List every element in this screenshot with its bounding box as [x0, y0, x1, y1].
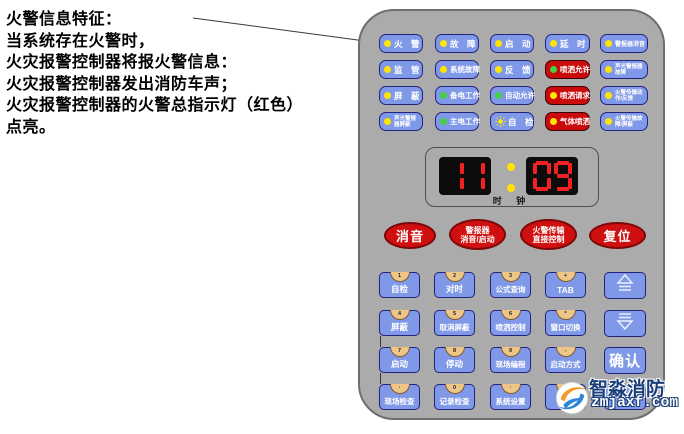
clock-label: 时 钟 [426, 194, 598, 207]
connector-line [380, 373, 381, 384]
keypad-button-shield-key[interactable]: 4屏蔽 [379, 310, 420, 336]
yellow-led [605, 118, 612, 125]
indicator-start: 启 动 [490, 34, 534, 53]
yellow-led [605, 40, 612, 47]
indicator-spray-request: 喷洒请求 [545, 86, 590, 105]
green-led [550, 66, 557, 73]
watermark-logo: 智淼消防 zmjaxf.com [552, 374, 684, 418]
yellow-led [440, 66, 447, 73]
keypad-button-label: 系统设置 [491, 396, 530, 407]
keypad-button-window-switch[interactable]: *窗口切换 [545, 310, 586, 336]
button-label: 警报器 [466, 226, 490, 235]
indicator-backup-power: 备电工作 [435, 86, 479, 105]
keypad-button-label: 启动 [380, 358, 419, 370]
key-number-notch: 4 [390, 310, 410, 320]
indicator-gas-spray: 气体喷洒 [545, 112, 590, 131]
indicator-label-line: 故障 [615, 70, 643, 76]
indicator-sounder-mute: 警报器消音 [600, 34, 648, 53]
keypad-button-formula-query[interactable]: 3公式查询 [490, 272, 531, 298]
annotation-line: 当系统存在火警时， [6, 30, 358, 52]
indicator-label: 屏 蔽 [394, 90, 420, 102]
key-number-notch: 5 [445, 310, 465, 320]
clock-colon-dot [507, 163, 515, 171]
indicator-label-line: 声光警报器 [615, 64, 643, 70]
annotation-text: 火警信息特征：当系统存在火警时，火灾报警控制器将报火警信息：火灾报警控制器发出消… [6, 8, 358, 137]
indicator-label: 声光警报器屏蔽 [394, 116, 416, 128]
keypad-button-label: 自检 [380, 283, 419, 295]
down-arrow-icon [614, 311, 636, 336]
indicator-label: 系统故障 [450, 64, 480, 75]
indicator-label: 延 时 [560, 38, 586, 50]
keypad-button-system-setup[interactable]: ·系统设置 [490, 384, 531, 410]
indicator-spray-allowed: 喷洒允许 [545, 60, 590, 79]
yellow-led [384, 66, 391, 73]
indicator-label: 火警传输故障/屏蔽 [615, 116, 643, 128]
indicator-label-line: 障/屏蔽 [615, 122, 643, 128]
indicator-label: 自 检 [508, 116, 534, 128]
key-number-notch: + [556, 272, 576, 282]
green-led [440, 92, 447, 99]
indicator-sounder-fault: 声光警报器故障 [600, 60, 648, 79]
clock-minutes-lcd [526, 157, 578, 195]
indicator-label-line: 火警传输故 [615, 116, 643, 122]
reset-button[interactable]: 复位 [589, 222, 646, 249]
indicator-label-line: 声光警报 [394, 116, 416, 122]
yellow-led [384, 40, 391, 47]
indicator-label: 喷洒请求 [560, 90, 590, 101]
seven-segment-digit [467, 161, 485, 191]
keypad-button-label: 现场检查 [380, 396, 419, 407]
keypad-button-time-set[interactable]: 2对时 [434, 272, 475, 298]
keypad-button-self-test[interactable]: 1自检 [379, 272, 420, 298]
annotation-line: 火灾报警控制器的火警总指示灯（红色） [6, 94, 358, 116]
indicator-label: 自动允许 [505, 90, 535, 101]
button-label: 消音 [396, 226, 424, 245]
control-panel: 火 警故 障启 动延 时警报器消音监 管系统故障反 馈喷洒允许声光警报器故障屏 … [358, 9, 665, 420]
key-number-notch: 6 [501, 310, 521, 320]
yellow-led [550, 118, 557, 125]
indicator-system-fault: 系统故障 [435, 60, 479, 79]
green-led [495, 92, 502, 99]
keypad-button-stop-key[interactable]: 8停动 [434, 347, 475, 373]
yellow-led [550, 92, 557, 99]
indicator-fault: 故 障 [435, 34, 479, 53]
keypad-button-label: 记录检查 [435, 396, 474, 407]
key-number-notch: 3 [501, 272, 521, 282]
indicator-fire-transmission-fault: 火警传输故障/屏蔽 [600, 112, 648, 131]
indicator-shield: 屏 蔽 [379, 86, 423, 105]
indicator-label: 火 警 [394, 38, 420, 50]
seven-segment-digit [446, 161, 464, 191]
indicator-label: 主电工作 [450, 116, 480, 127]
keypad-button-start-mode[interactable]: -启动方式 [545, 347, 586, 373]
indicator-delay: 延 时 [545, 34, 590, 53]
keypad-button-field-check[interactable]: ·现场检查 [379, 384, 420, 410]
indicator-label-line: 火警传输动 [615, 90, 643, 96]
key-number-notch: 2 [445, 272, 465, 282]
yellow-led [384, 118, 391, 125]
key-number-notch: · [501, 384, 521, 394]
indicator-label: 反 馈 [505, 64, 531, 76]
key-number-notch: 9 [501, 347, 521, 357]
indicator-label: 启 动 [505, 38, 531, 50]
indicator-label-line: 作/反馈 [615, 96, 643, 102]
clock-display: 时 钟 [425, 147, 599, 207]
keypad-button-label: 启动方式 [546, 359, 585, 370]
indicator-label: 火警传输动作/反馈 [615, 90, 643, 102]
self-test-flashing-icon [495, 116, 506, 127]
fire-transmission-direct-control-button[interactable]: 火警传输直接控制 [520, 219, 577, 250]
keypad-button-label: 屏蔽 [380, 321, 419, 333]
key-number-notch: 0 [445, 384, 465, 394]
key-number-notch: 1 [390, 272, 410, 282]
sounder-mute-start-button[interactable]: 警报器消音/启动 [449, 219, 506, 250]
keypad-button-label: 喷洒控制 [491, 322, 530, 333]
button-label: 直接控制 [533, 235, 565, 244]
keypad-button-record-check[interactable]: 0记录检查 [434, 384, 475, 410]
annotation-line: 火警信息特征： [6, 8, 358, 30]
scroll-down-button[interactable] [604, 310, 646, 337]
yellow-led [440, 40, 447, 47]
button-label: 复位 [603, 226, 631, 245]
annotation-line: 点亮。 [6, 116, 358, 138]
clock-colon-dot [507, 184, 515, 192]
yellow-led [384, 92, 391, 99]
button-label: 消音/启动 [460, 235, 494, 244]
annotation-line: 火灾报警控制器发出消防车声； [6, 73, 358, 95]
indicator-label: 故 障 [450, 38, 476, 50]
keypad-button-label: 取消屏蔽 [435, 322, 474, 333]
indicator-label: 气体喷洒 [560, 116, 590, 127]
zhimiao-logo-icon [555, 381, 589, 420]
logo-site-text: zmjaxf.com [591, 395, 678, 411]
keypad-button-label: TAB [546, 285, 585, 295]
key-number-notch: * [556, 310, 576, 320]
keypad-button-label: 窗口切换 [546, 322, 585, 333]
green-led [440, 118, 447, 125]
keypad-button-label: 现场编程 [491, 359, 530, 370]
indicator-label: 喷洒允许 [560, 64, 590, 75]
seven-segment-digit [533, 161, 551, 191]
indicator-main-power: 主电工作 [435, 112, 479, 131]
up-arrow-icon [614, 273, 636, 298]
indicator-label: 监 管 [394, 64, 420, 76]
indicator-auto-allowed: 自动允许 [490, 86, 534, 105]
indicator-feedback: 反 馈 [490, 60, 534, 79]
clock-hours-lcd [439, 157, 491, 195]
yellow-led [605, 92, 612, 99]
key-number-notch: 7 [390, 347, 410, 357]
keypad-button-field-program[interactable]: 9现场编程 [490, 347, 531, 373]
keypad-button-spray-control[interactable]: 6喷洒控制 [490, 310, 531, 336]
indicator-label-line: 器屏蔽 [394, 122, 416, 128]
connector-line [380, 336, 381, 347]
keypad-button-tab[interactable]: +TAB [545, 272, 586, 298]
indicator-fire-transmission-action: 火警传输动作/反馈 [600, 86, 648, 105]
yellow-led [550, 40, 557, 47]
confirm-button[interactable]: 确认 [604, 347, 646, 374]
indicator-fire-alarm: 火 警 [379, 34, 423, 53]
indicator-label: 备电工作 [450, 90, 480, 101]
keypad-button-label: 公式查询 [491, 284, 530, 295]
page-root: 火警信息特征：当系统存在火警时，火灾报警控制器将报火警信息：火灾报警控制器发出消… [0, 0, 684, 434]
indicator-label: 警报器消音 [615, 39, 645, 48]
keypad-button-label: 对时 [435, 283, 474, 295]
keypad-button-start-key[interactable]: 7启动 [379, 347, 420, 373]
indicator-label: 声光警报器故障 [615, 64, 643, 76]
yellow-led [495, 66, 502, 73]
seven-segment-digit [554, 161, 572, 191]
annotation-line: 火灾报警控制器将报火警信息： [6, 51, 358, 73]
key-number-notch: 8 [445, 347, 465, 357]
indicator-self-test-lamp: 自 检 [490, 112, 534, 131]
yellow-led [605, 66, 612, 73]
scroll-up-button[interactable] [604, 272, 646, 299]
key-number-notch: · [390, 384, 410, 394]
indicator-sounder-shield: 声光警报器屏蔽 [379, 112, 423, 131]
keypad-button-label: 停动 [435, 358, 474, 370]
mute-button[interactable]: 消音 [384, 222, 436, 249]
key-number-notch: - [556, 347, 576, 357]
indicator-supervisory: 监 管 [379, 60, 423, 79]
button-label: 火警传输 [533, 226, 565, 235]
yellow-led [495, 40, 502, 47]
keypad-button-unshield[interactable]: 5取消屏蔽 [434, 310, 475, 336]
